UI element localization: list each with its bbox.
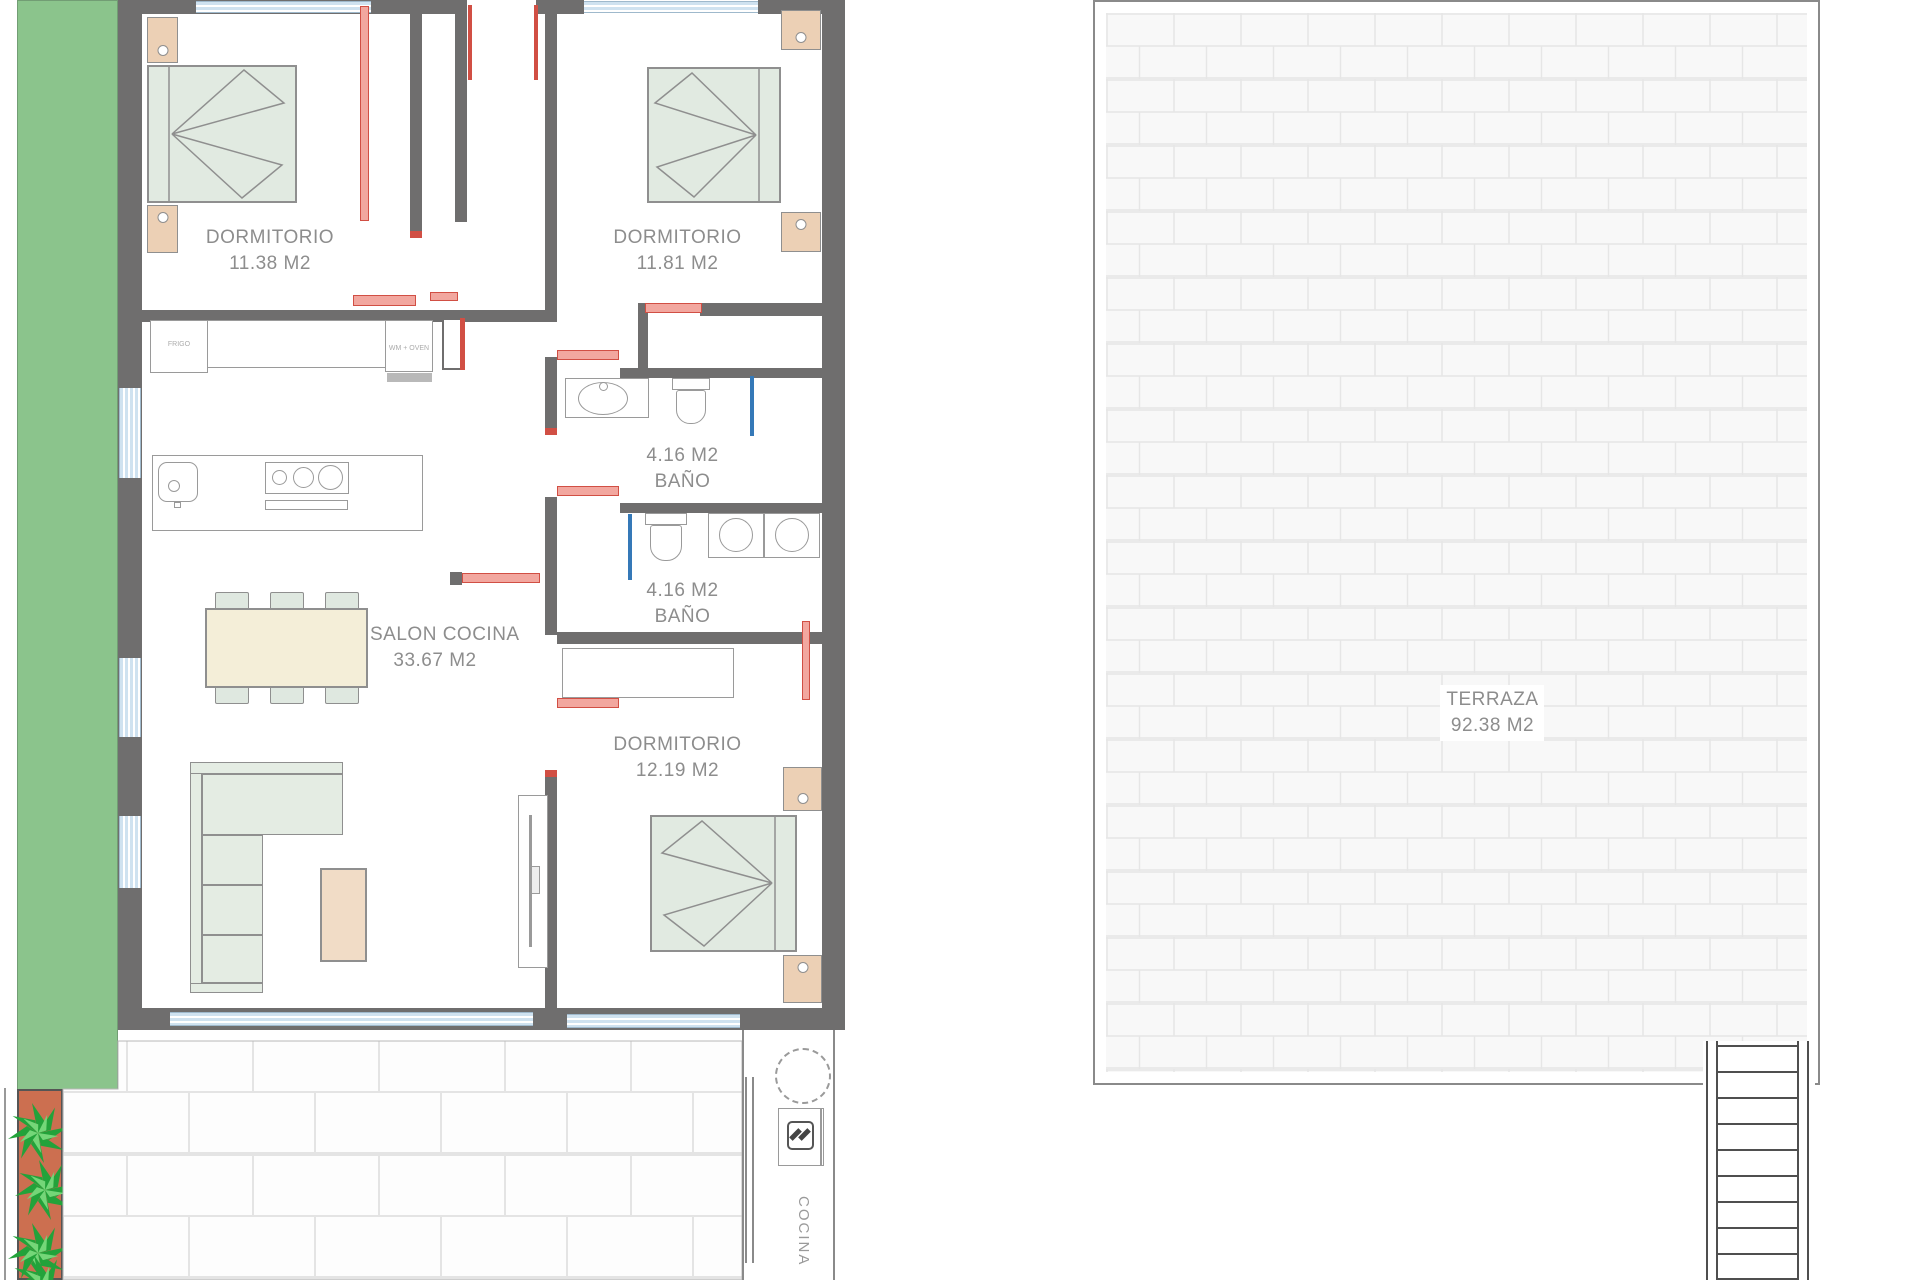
nightstand xyxy=(147,205,178,253)
wall-bath2-top xyxy=(620,503,822,513)
room-label-terraza: TERRAZA 92.38 M2 xyxy=(1415,687,1570,739)
nightstand xyxy=(783,767,822,811)
dining-table xyxy=(205,608,368,688)
wall-red-cap xyxy=(410,231,422,238)
stair-tread xyxy=(1718,1253,1797,1255)
appliance-label: WM + OVEN xyxy=(384,345,434,352)
wall-right-exterior xyxy=(822,0,845,1030)
wall-hall-right xyxy=(455,8,467,222)
outdoor-kitchen-wall-line xyxy=(833,1030,835,1280)
room-label-bath1: 4.16 M2 BAÑO xyxy=(640,443,725,495)
wall-bedroom2-stub xyxy=(638,303,648,375)
closet-below-bath2 xyxy=(562,648,734,698)
tv-box xyxy=(531,866,540,894)
bed-bedroom2 xyxy=(647,67,781,203)
stair-tread xyxy=(1718,1071,1797,1073)
burner-icon xyxy=(293,467,314,488)
window-bedroom1-top xyxy=(196,1,371,13)
wall-red-cap xyxy=(460,318,465,370)
lamp-icon xyxy=(157,45,168,56)
wall-top-segment xyxy=(536,0,584,14)
room-name: DORMITORIO xyxy=(195,225,345,251)
appliance-label: FRIGO xyxy=(152,341,206,348)
wall-spine xyxy=(545,357,557,435)
outdoor-kitchen-wall-line xyxy=(742,1030,744,1280)
lamp-icon xyxy=(796,219,807,230)
wall-bedroom2-bottom xyxy=(700,303,845,316)
room-label-bedroom2: DORMITORIO 11.81 M2 xyxy=(600,225,755,277)
bbq-divider xyxy=(820,1108,822,1166)
sofa-base xyxy=(190,983,263,993)
stair-rail xyxy=(1807,1041,1809,1280)
door-lintel-bath1 xyxy=(557,350,619,360)
nightstand xyxy=(783,955,822,1003)
stair-tread xyxy=(1718,1201,1797,1203)
nightstand xyxy=(781,212,821,252)
room-area: 33.67 M2 xyxy=(370,648,500,674)
room-name: TERRAZA xyxy=(1415,687,1570,713)
room-area: 12.19 M2 xyxy=(600,758,755,784)
sofa-seat xyxy=(202,774,343,835)
room-label-bedroom1: DORMITORIO 11.38 M2 xyxy=(195,225,345,277)
stair-rail xyxy=(1706,1041,1708,1280)
chair xyxy=(325,686,359,704)
sofa-seat xyxy=(202,835,263,885)
door-lintel-bedroom2 xyxy=(645,303,702,313)
toilet-icon xyxy=(676,390,706,424)
sink-drain-icon xyxy=(168,480,180,492)
stair-tread xyxy=(1718,1045,1797,1047)
bed-bedroom3 xyxy=(650,815,797,952)
room-area: 11.38 M2 xyxy=(195,251,345,277)
sofa-seat xyxy=(202,935,263,983)
closet-counter xyxy=(207,320,386,368)
lamp-icon xyxy=(797,962,808,973)
stair-tread xyxy=(1718,1227,1797,1229)
wall-bath1-top xyxy=(620,368,822,378)
room-name: SALON COCINA xyxy=(370,622,500,648)
room-label-salon: SALON COCINA 33.67 M2 xyxy=(370,622,500,674)
red-wardrobe-outline xyxy=(360,6,369,221)
lamp-icon xyxy=(796,32,807,43)
room-name: DORMITORIO xyxy=(600,225,755,251)
door-lintel-bedroom3 xyxy=(557,698,619,708)
sofa-backrest xyxy=(190,762,202,993)
wall-niche xyxy=(410,0,422,238)
sofa-seat xyxy=(202,885,263,935)
sofa-backrest xyxy=(190,762,343,774)
lamp-icon xyxy=(797,793,808,804)
door-pocket-stub xyxy=(450,572,462,585)
room-name: BAÑO xyxy=(640,469,725,495)
window-left-wall-3 xyxy=(119,816,141,888)
room-label-bedroom3: DORMITORIO 12.19 M2 xyxy=(600,732,755,784)
glass-door xyxy=(745,1077,754,1263)
window-left-wall-2 xyxy=(119,658,141,737)
red-marker-bar xyxy=(353,295,416,306)
sink-icon xyxy=(719,518,753,552)
chair xyxy=(215,686,249,704)
window-bedroom3-bottom xyxy=(567,1014,740,1028)
pipe-line xyxy=(750,376,754,436)
nightstand xyxy=(781,10,821,50)
room-area: 92.38 M2 xyxy=(1415,713,1570,739)
coffee-table xyxy=(320,868,367,962)
chair xyxy=(270,686,304,704)
round-table-icon xyxy=(775,1048,831,1104)
wall-bath2-bottom xyxy=(557,632,822,644)
door-slider-bath2 xyxy=(462,573,540,583)
room-area: 4.16 M2 xyxy=(640,443,725,469)
nightstand xyxy=(147,17,178,63)
wall-red-cap xyxy=(545,428,557,435)
window-salon-bottom xyxy=(170,1012,533,1026)
red-marker-bar xyxy=(430,292,458,301)
red-partition-vertical xyxy=(802,621,810,700)
stair-tread xyxy=(1718,1097,1797,1099)
outdoor-kitchen-label: COCINA xyxy=(795,1196,812,1280)
faucet-icon xyxy=(599,382,608,391)
lamp-icon xyxy=(157,212,168,223)
stair-tread xyxy=(1718,1123,1797,1125)
entrance-door-frame xyxy=(468,5,472,80)
pipe-line xyxy=(628,514,632,580)
garden-strip xyxy=(17,0,118,1090)
burner-icon xyxy=(318,465,343,490)
stove-drawer xyxy=(265,500,348,510)
wall-red-cap xyxy=(545,770,557,777)
wall-spine xyxy=(545,0,557,312)
toilet-tank xyxy=(672,378,710,390)
window-bedroom2-top xyxy=(584,1,758,13)
bed-bedroom1 xyxy=(147,65,297,203)
stair-rail xyxy=(1716,1041,1718,1280)
stair-tread xyxy=(1718,1175,1797,1177)
floor-plan: DORMITORIO 11.38 M2 FRIGO WM + OVEN DORM… xyxy=(0,0,1920,1280)
toilet-tank xyxy=(645,513,687,525)
entrance-door-frame xyxy=(534,5,538,80)
room-name: DORMITORIO xyxy=(600,732,755,758)
closet-shelf xyxy=(387,373,432,382)
door-lintel-bath2 xyxy=(557,486,619,496)
terraza-tiles xyxy=(1106,13,1807,1072)
window-left-wall-1 xyxy=(119,388,141,478)
room-area: 4.16 M2 xyxy=(640,578,725,604)
burner-icon xyxy=(272,470,287,485)
room-area: 11.81 M2 xyxy=(600,251,755,277)
stair-tread xyxy=(1718,1149,1797,1151)
sink-icon xyxy=(775,518,809,552)
stair-rail xyxy=(1797,1041,1799,1280)
room-label-bath2: 4.16 M2 BAÑO xyxy=(640,578,725,630)
room-name: BAÑO xyxy=(640,604,725,630)
toilet-icon xyxy=(650,525,682,561)
sink-tap-icon xyxy=(174,502,181,508)
stairs xyxy=(1703,1041,1815,1280)
front-terrace-tiles xyxy=(0,1030,900,1280)
wall-spine xyxy=(545,497,557,635)
